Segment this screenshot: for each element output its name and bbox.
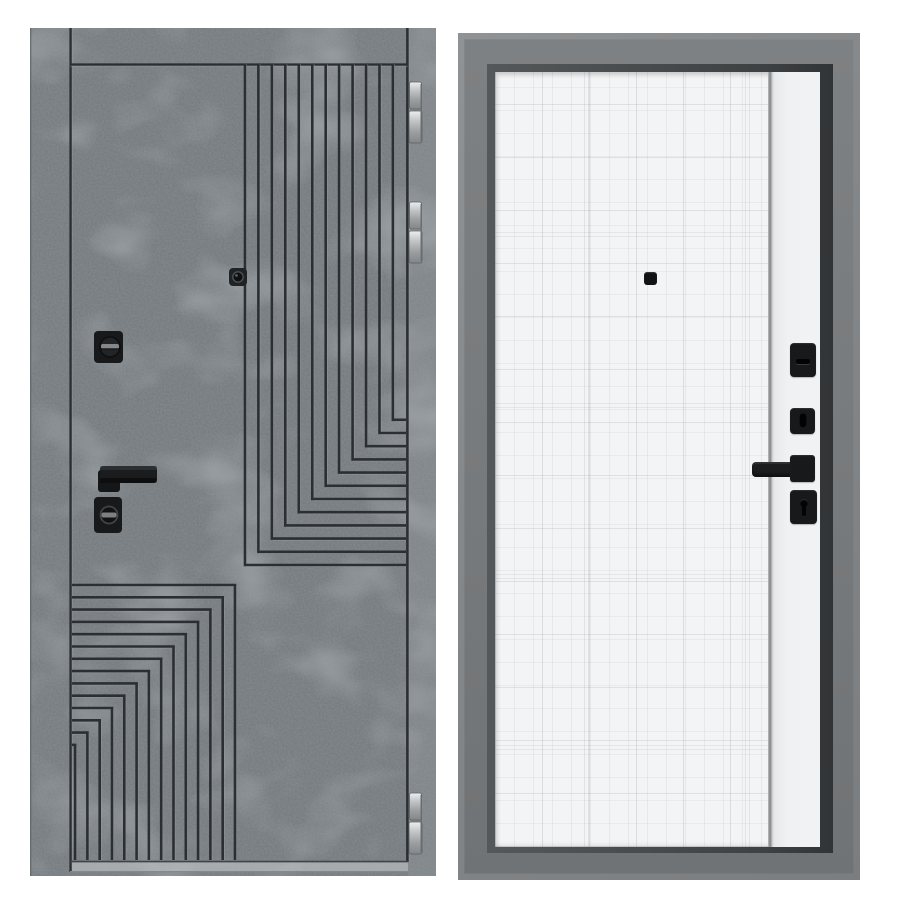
lock-keyhole-slot: [802, 505, 806, 516]
door-product-photo: [0, 0, 900, 900]
peephole: [229, 268, 247, 286]
door-hinge: [409, 202, 422, 263]
keyhole-slot: [799, 414, 806, 429]
peephole: [644, 272, 657, 285]
thumbturn-slot: [796, 359, 810, 364]
interior-door-panel: [458, 33, 860, 880]
door-hinge: [409, 793, 422, 854]
handle-rose: [790, 455, 815, 482]
lock-plate: [790, 490, 817, 524]
thumbturn-plate: [790, 343, 816, 377]
cylinder-escutcheon: [94, 497, 122, 533]
interior-panel-surface: [495, 72, 820, 847]
exterior-door-panel: [30, 28, 436, 876]
keyhole-plate: [790, 408, 815, 434]
door-hinge: [409, 82, 422, 143]
thumbturn-deadbolt: [94, 331, 123, 363]
concrete-texture: [30, 28, 436, 876]
